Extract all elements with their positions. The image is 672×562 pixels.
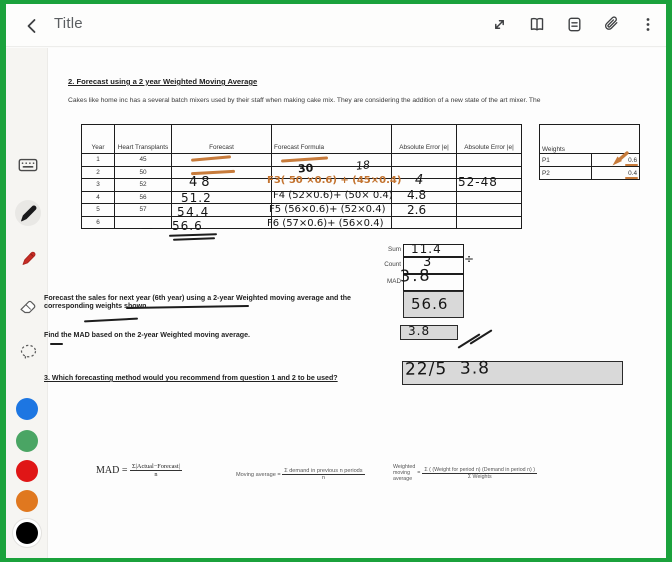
mad-label: MAD [361,278,401,285]
hw-answer-mad: 3.8 [408,325,430,337]
top-toolbar: Title [6,4,666,47]
value-cell: 50 [115,166,172,179]
marker-icon [18,247,38,267]
attachment-icon[interactable] [603,16,620,33]
value-cell: 56 [115,191,172,204]
orange-underline-annotation [625,177,638,179]
hw-divide-sign: ÷ [464,253,474,265]
eraser-icon [18,295,39,316]
table-header-row: Year Heart Transplants Forecast Forecast… [82,125,522,154]
hw-forecast-y6: 56.6 [172,220,203,232]
note-canvas[interactable]: 2. Forecast using a 2 year Weighted Movi… [48,48,666,558]
hw-error-diff: 52-48 [458,176,498,188]
mad-formula: MAD = Σ|Actual−Forecast|n [96,463,182,478]
hw-error-y3: 4 [415,174,423,187]
color-swatch-blue[interactable] [16,398,38,420]
hw-calc-18: 18 [355,159,370,171]
hw-error-y4: 4.8 [407,189,426,201]
col-transplants: Heart Transplants [115,125,172,154]
year-cell: 6 [82,216,115,229]
question-3: 3. Which forecasting method would you re… [44,374,374,382]
keyboard-tool-button[interactable] [15,152,41,178]
year-cell: 2 [82,166,115,179]
weighted-moving-average-formula: Weighted moving average = Σ ( (Weight fo… [393,464,537,482]
marker-tool-button[interactable] [15,244,41,270]
keyboard-icon [17,154,39,176]
col-abs-error-1: Absolute Error |e| [392,125,457,154]
moving-average-formula: Moving average = Σ demand in previous n … [236,468,365,481]
back-button[interactable] [22,16,42,36]
hw-forecast-y4: 51.2 [181,192,212,204]
year-cell: 4 [82,191,115,204]
more-icon[interactable] [640,16,656,33]
pen-icon [18,203,39,224]
hand-underline-annotation [84,318,138,322]
note-app-window: Title [0,0,672,562]
drawing-tool-sidebar [6,48,48,558]
col-abs-error-2: Absolute Error |e| [457,125,522,154]
hw-error-y5: 2.6 [407,204,426,216]
value-cell: 57 [115,204,172,217]
col-formula: Forecast Formula [272,125,392,154]
question-2: Find the MAD based on the 2-year Weighte… [44,331,374,339]
eraser-tool-button[interactable] [15,292,41,318]
hw-formula-f4: F4 (52×0.6)+ (50× 0.4) [273,191,393,201]
hw-dash-y6: — [141,222,153,234]
col-forecast: Forecast [172,125,272,154]
weight-value: 0.4 [592,167,640,180]
hw-formula-f5: F5 (56×0.6)+ (52×0.4) [269,205,385,215]
hw-forecast-y3: 48 [189,176,214,189]
hand-dash-annotation [50,343,63,345]
lasso-tool-button[interactable] [15,338,41,364]
color-swatch-green[interactable] [16,430,38,452]
value-cell: 52 [115,179,172,192]
hand-underline-annotation [169,233,217,236]
hw-sum-value: 11.4 [411,243,442,255]
sum-label: Sum [361,246,401,253]
value-cell: 45 [115,154,172,167]
hw-answer-q3: 22/5 3.8 [405,360,490,378]
hw-answer-forecast: 56.6 [411,297,448,312]
color-swatch-red[interactable] [16,460,38,482]
check-slash-annotation [457,333,480,348]
weight-label: P1 [540,154,592,167]
year-cell: 3 [82,179,115,192]
section-heading: 2. Forecast using a 2 year Weighted Movi… [68,77,257,86]
orange-arrow-annotation [611,150,629,168]
reader-view-icon[interactable] [528,16,546,33]
expand-icon[interactable] [491,16,508,33]
color-swatch-orange[interactable] [16,490,38,512]
hand-underline-annotation [173,237,215,240]
hw-formula-f6: F6 (57×0.6)+ (56×0.4) [267,219,383,229]
hw-mad-value: 3.8 [400,267,432,284]
chevron-left-icon [22,16,42,36]
hw-formula-f3: F3( 50 ×0.6) + (45×0.4) [267,176,401,186]
year-cell: 1 [82,154,115,167]
weight-row: P2 0.4 [540,167,640,180]
col-year: Year [82,125,115,154]
page-icon[interactable] [566,16,583,33]
app-surface: Title [6,4,666,558]
question-1: Forecast the sales for next year (6th ye… [44,294,366,310]
hw-forecast-y5: 54.4 [177,206,210,218]
note-title[interactable]: Title [54,15,83,32]
intro-paragraph: Cakes like home inc has a several batch … [68,97,643,104]
lasso-icon [18,341,39,362]
year-cell: 5 [82,204,115,217]
count-label: Count [361,261,401,268]
color-swatch-black[interactable] [16,522,38,544]
hw-calc-30: 30 [298,162,314,174]
pen-tool-button[interactable] [15,200,41,226]
weight-label: P2 [540,167,592,180]
